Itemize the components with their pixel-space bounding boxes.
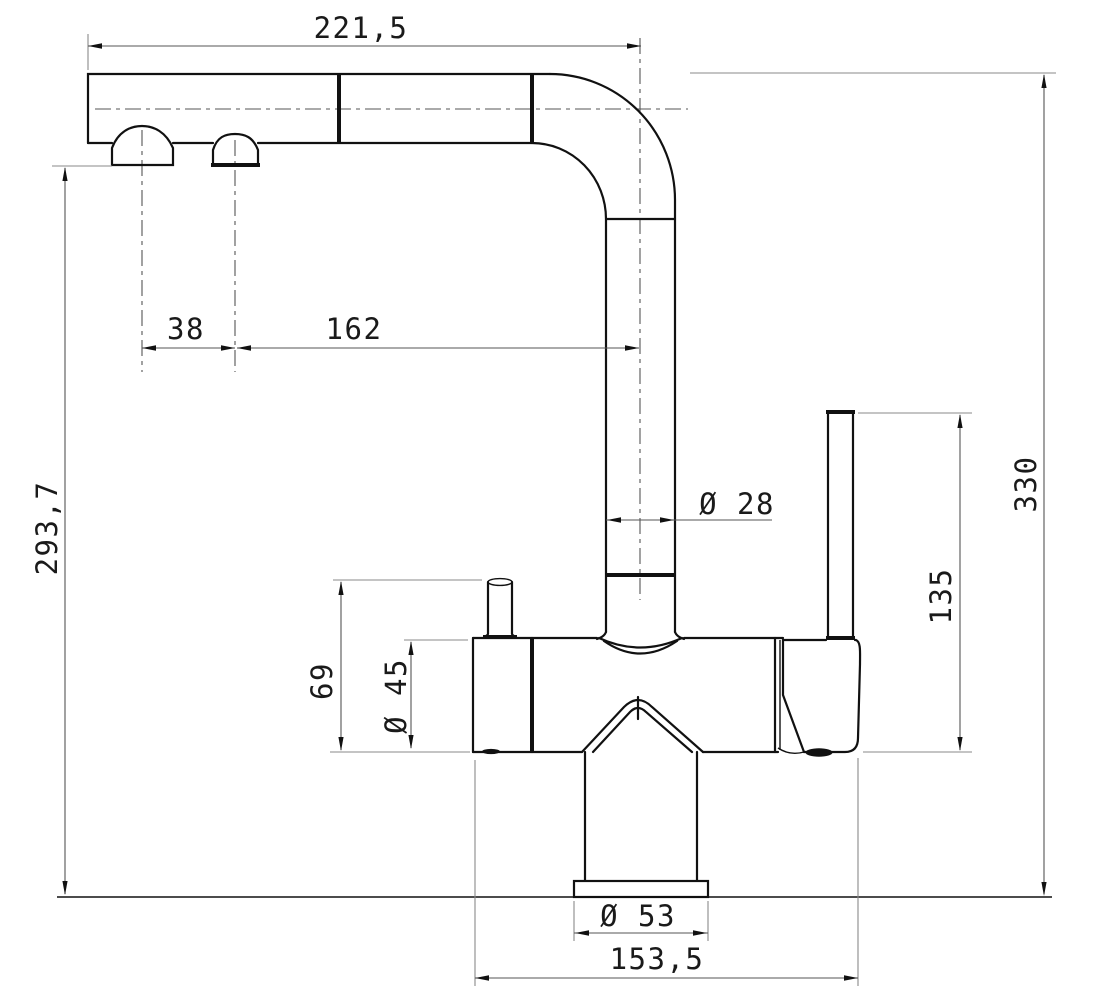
dim-label-riser-diameter: Ø 28: [699, 487, 775, 521]
dim-body-length: 153,5: [475, 758, 858, 986]
dim-overall-height: 330: [690, 73, 1056, 896]
drawing-canvas: 221,5 38 162 293,7 330 135: [0, 0, 1102, 1000]
dim-aerator-to-riser: 162: [237, 312, 639, 351]
dim-base-diameter: Ø 53: [574, 899, 708, 941]
dim-riser-diameter: Ø 28: [606, 487, 775, 523]
dim-lever-height: 135: [858, 413, 972, 752]
dim-body-diameter: Ø 45: [379, 640, 468, 749]
dim-spout-reach: 221,5: [88, 11, 641, 70]
handle: [778, 412, 860, 757]
valve-body: [473, 638, 783, 754]
dim-label-lever-height: 135: [924, 568, 958, 625]
dim-aerator-spacing: 38: [142, 312, 235, 351]
base-column: [574, 697, 708, 897]
dim-label-spout-reach: 221,5: [314, 11, 409, 45]
dim-label-deck-to-spout-outlet: 293,7: [30, 481, 64, 576]
dim-label-base-diameter: Ø 53: [600, 899, 676, 933]
dim-deck-to-spout-outlet: 293,7: [30, 166, 112, 895]
dim-label-body-diameter: Ø 45: [379, 658, 413, 734]
spout-bend-and-riser: [532, 74, 684, 654]
dim-label-body-length: 153,5: [610, 942, 705, 976]
spout-outlet-domes: [112, 126, 260, 165]
faucet-technical-drawing: 221,5 38 162 293,7 330 135: [0, 0, 1102, 1000]
dim-label-overall-height: 330: [1009, 456, 1043, 513]
dim-label-aerator-spacing: 38: [167, 312, 205, 346]
dim-label-aerator-to-riser: 162: [326, 312, 383, 346]
dim-label-knob-height: 69: [305, 662, 339, 700]
side-knob: [483, 579, 517, 637]
